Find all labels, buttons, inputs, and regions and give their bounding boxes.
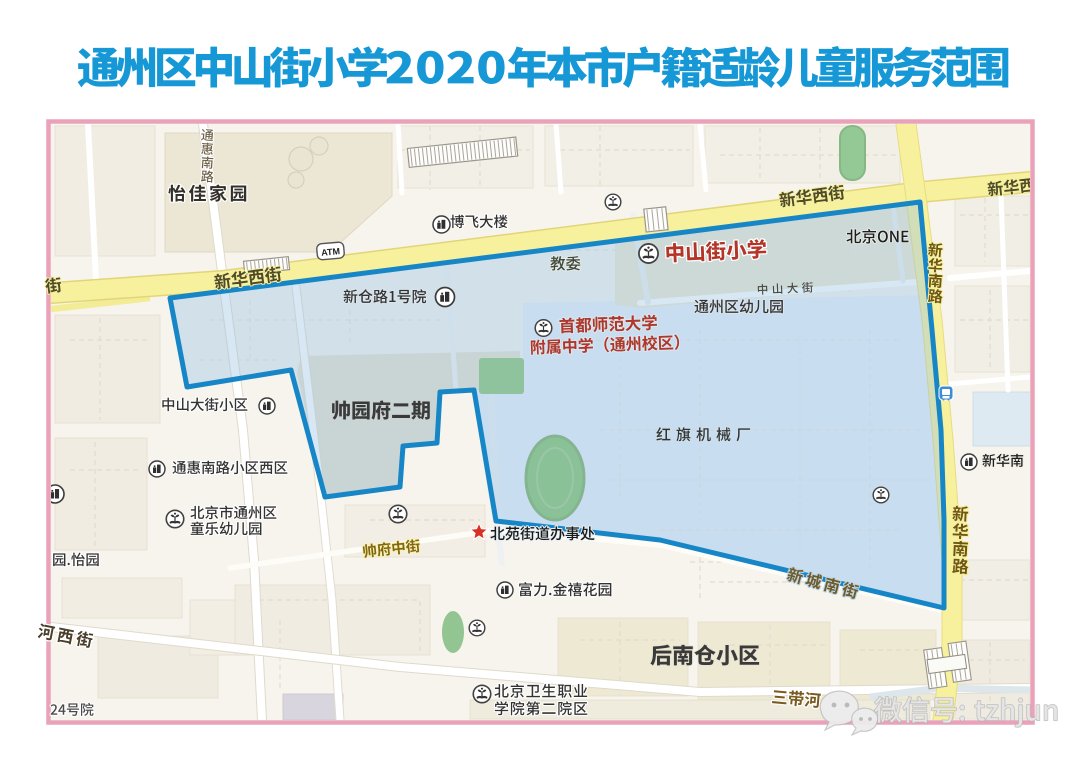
svg-text:ATM: ATM — [321, 246, 341, 258]
